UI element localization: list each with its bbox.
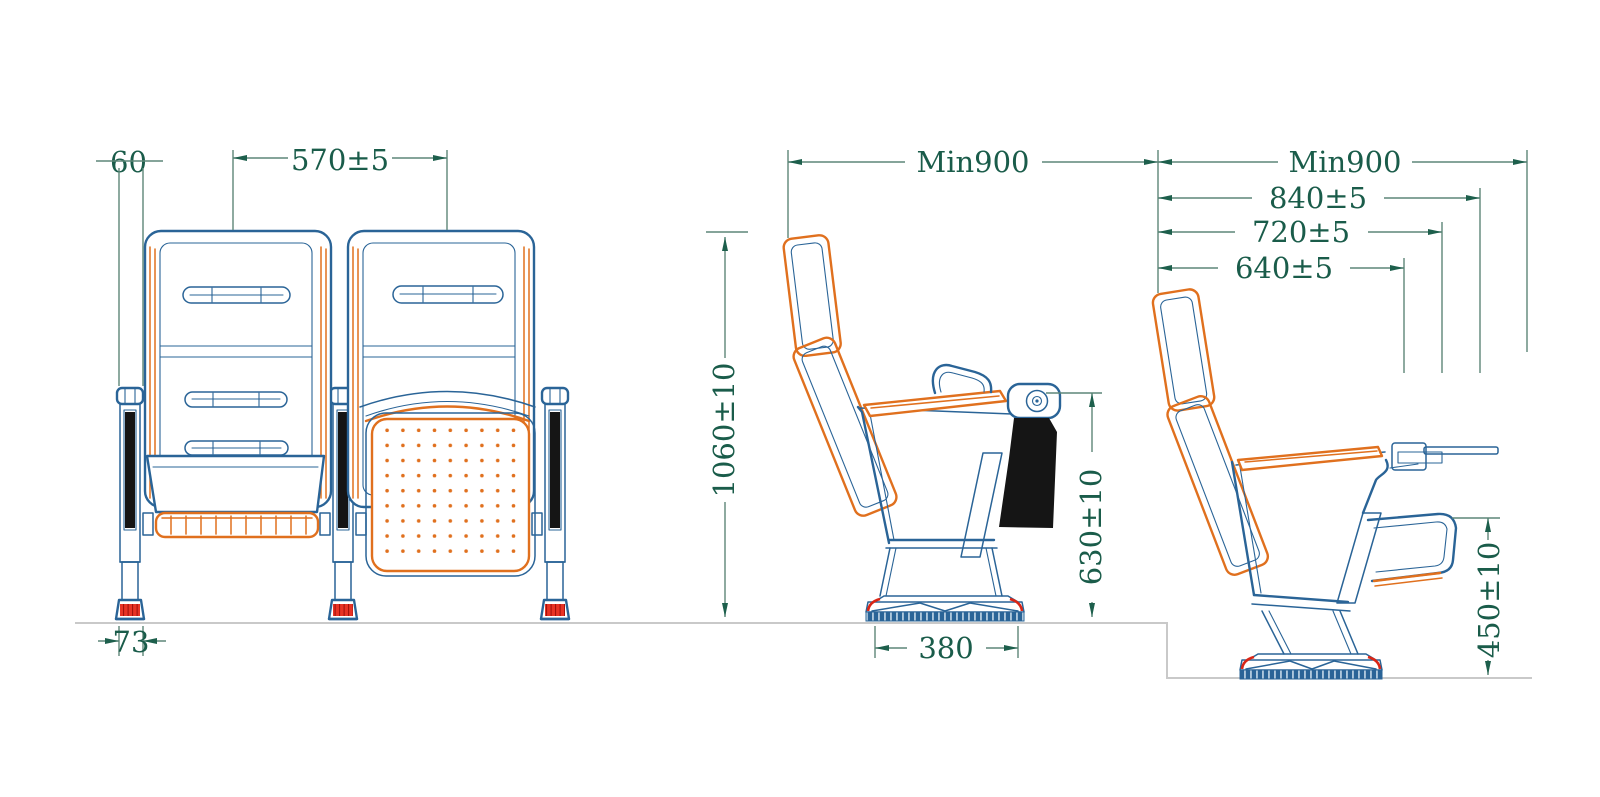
tablet-hinge [1008, 384, 1060, 418]
dim-depth-640: 640±5 [1158, 251, 1404, 373]
seat-left-front [145, 231, 331, 537]
foot-red-edge [1010, 599, 1022, 611]
backrest-upper [1152, 288, 1216, 412]
dim-overall-height-1060: 1060±10 [706, 232, 748, 617]
foot-red-edge [868, 599, 880, 611]
dim-foot-width-73: 73 [98, 625, 166, 659]
dim-seat-spacing-570: 570±5 [233, 143, 447, 230]
front-view-two-seats: 60 570±5 73 [96, 143, 569, 659]
seat-cushion-down [147, 456, 324, 512]
dim-label-min900: Min900 [917, 145, 1030, 179]
dim-label-60: 60 [110, 145, 147, 179]
dim-label-min900-right: Min900 [1289, 145, 1402, 179]
armrest-column-right [532, 388, 569, 619]
armrest-pad-side [550, 412, 560, 528]
dim-tablet-height-450: 450±10 [1452, 518, 1506, 675]
backrest-lower [791, 335, 899, 518]
pedestal-foot [1240, 654, 1382, 679]
hatched-support [1337, 513, 1381, 603]
dim-armrest-height-630: 630±10 [1046, 393, 1108, 617]
foot-red-pad [333, 604, 353, 616]
dim-label-73: 73 [113, 625, 150, 659]
foot-base-band [1240, 670, 1382, 679]
armrest-pad-side [338, 412, 348, 528]
seat-body-side [1232, 452, 1388, 654]
seat-handle [933, 365, 991, 393]
dim-label-630: 630±10 [1074, 469, 1108, 586]
side-view-seat-tablet: Min900 840±5 720±5 640±5 [1152, 145, 1527, 679]
dim-label-570: 570±5 [291, 143, 389, 177]
side-view-seat: Min900 1060±10 630±10 380 [706, 145, 1158, 665]
perforated-underside [380, 428, 523, 564]
foot-red-pad [120, 604, 140, 616]
tablet-board [1424, 447, 1498, 454]
dim-label-380: 380 [918, 631, 973, 665]
drawing-canvas: 60 570±5 73 [0, 0, 1600, 797]
dim-label-640: 640±5 [1235, 251, 1333, 285]
dim-label-840: 840±5 [1269, 181, 1367, 215]
seat-body-side [858, 407, 1012, 596]
pedestal-foot [866, 596, 1024, 621]
foot-red-pad [545, 604, 565, 616]
dim-depth-720: 720±5 [1158, 215, 1442, 373]
drawing-svg: 60 570±5 73 [0, 0, 1600, 797]
writing-tablet-extended [1390, 443, 1498, 470]
foot-base-band [866, 612, 1024, 621]
seat-right-front-folded [348, 231, 535, 576]
loop-armrest [1368, 514, 1456, 586]
seat-front-slat-strip [156, 513, 318, 537]
hatched-support [961, 453, 1002, 557]
dim-row-pitch-min900: Min900 [788, 145, 1158, 238]
backrest-lower [1165, 394, 1271, 578]
dim-label-450: 450±10 [1472, 542, 1506, 659]
dim-label-1060: 1060±10 [707, 362, 741, 497]
writing-tablet-folded [999, 418, 1057, 528]
armrest-pad-top [1238, 447, 1382, 470]
dim-label-720: 720±5 [1252, 215, 1350, 249]
armrest-pad-side [125, 412, 135, 528]
dim-base-depth-380: 380 [875, 626, 1018, 665]
backrest-upper [783, 234, 842, 357]
